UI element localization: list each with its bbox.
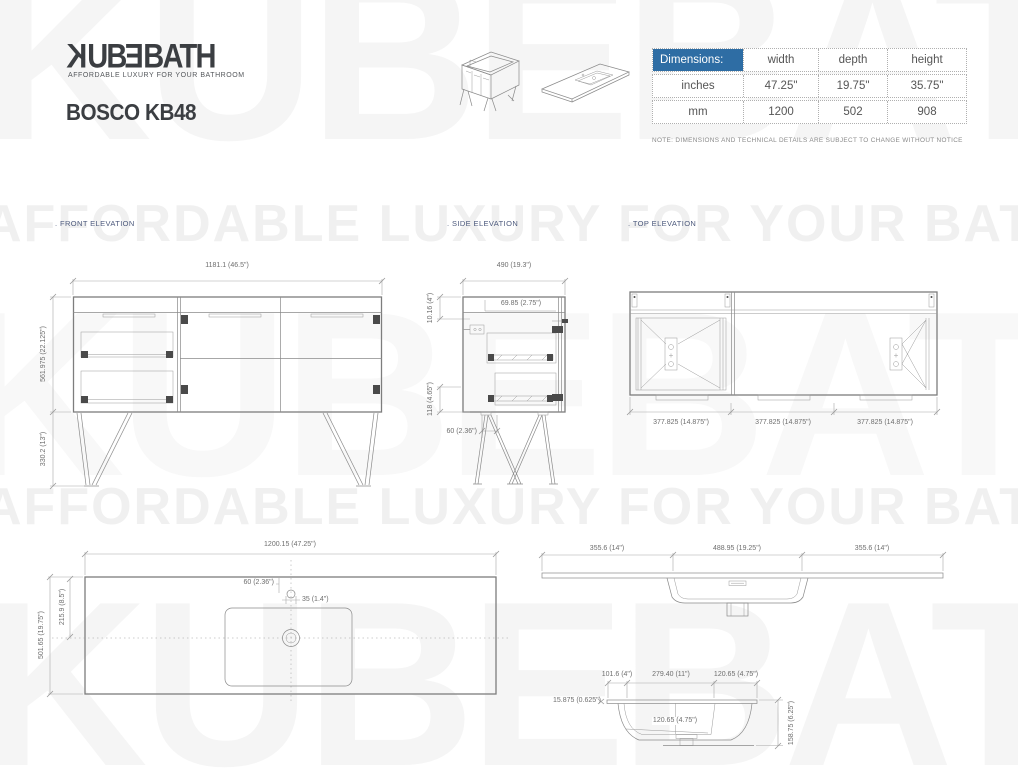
left-bay-brace: [636, 318, 726, 390]
table-header-height: height: [887, 49, 966, 71]
side-depth-dim: 490 (19.3"): [497, 262, 531, 270]
logo-letter-e: E: [126, 36, 144, 76]
sink-iso-icon: [538, 55, 633, 107]
section-label-side-elevation: . SIDE ELEVATION: [447, 219, 518, 228]
table-row-mm: mm 1200 502 908: [652, 100, 967, 124]
sink-front-drawing: 355.6 (14") 488.95 (19.25") 355.6 (14"): [535, 540, 960, 648]
plan-depth-dim: 501.65 (19.75"): [38, 611, 46, 659]
vanity-iso-icon: [450, 45, 525, 113]
side-inner-dim: 69.85 (2.75"): [501, 300, 541, 308]
table-header-dimensions: Dimensions:: [653, 49, 743, 71]
vanity-thumbnail: [450, 45, 525, 113]
sink-front-svg: [535, 540, 960, 648]
hairpin-legs-side: [473, 412, 558, 484]
logo-letter-k: K: [68, 36, 87, 76]
top-elevation-drawing: 377.825 (14.875") 377.825 (14.875") 377.…: [628, 282, 943, 432]
table-header-width: width: [743, 49, 818, 71]
counter-slab: [542, 573, 943, 578]
logo-letters-bath: BATH: [143, 36, 214, 75]
section-d2-dim: 279.40 (11"): [652, 671, 690, 679]
plan-width-dim: 1200.15 (47.25"): [264, 541, 316, 549]
mm-height: 908: [887, 101, 966, 123]
side-lower-dim: 118 (4.65"): [427, 382, 435, 416]
spec-sheet-page: KUBEBATH AFFORDABLE LUXURY FOR YOUR BATH…: [0, 0, 1018, 772]
table-header-row: Dimensions: width depth height: [652, 48, 967, 72]
side-top-rail-dim: 10.16 (4"): [427, 293, 435, 324]
inches-height: 35.75": [887, 75, 966, 97]
sink-thumbnail: [538, 55, 633, 107]
section-basin-depth-dim: 120.65 (4.75"): [652, 717, 698, 725]
countertop-plan-svg: [40, 540, 515, 705]
counter-slab-section: [607, 700, 757, 704]
drawer-1: [81, 332, 173, 357]
front-width-dim: 1181.1 (46.5"): [205, 262, 249, 270]
plan-faucet-offset-dim: 60 (2.36"): [192, 579, 274, 587]
cabinet-divider: [178, 297, 181, 412]
table-row-inches: inches 47.25" 19.75" 35.75": [652, 74, 967, 98]
mm-width: 1200: [743, 101, 818, 123]
hairpin-legs: [77, 413, 378, 486]
brand-tagline: AFFORDABLE LUXURY FOR YOUR BATHROOM: [68, 72, 245, 79]
basin-outline: [225, 608, 352, 686]
section-label-top-elevation: . TOP ELEVATION: [628, 219, 696, 228]
drawer-2: [81, 371, 173, 403]
drain-stub: [727, 603, 748, 616]
top-seg1-dim: 377.825 (14.875"): [653, 419, 709, 427]
front-elevation-drawing: 1181.1 (46.5") 561.975 (22.125") 330.2 (…: [40, 255, 390, 489]
drain-flange: [676, 735, 697, 739]
top-seg3-dim: 377.825 (14.875"): [857, 419, 913, 427]
logo-letters-ub: UB: [87, 36, 125, 75]
product-title: BOSCO KB48: [66, 99, 196, 126]
mm-depth: 502: [818, 101, 887, 123]
section-label-front-elevation: . FRONT ELEVATION: [55, 219, 135, 228]
drain-body: [680, 739, 693, 746]
front-elevation-svg: [40, 255, 390, 489]
sink-section-drawing: 101.6 (4") 279.40 (11") 120.65 (4.75") 1…: [535, 655, 835, 770]
sinkfront-left-dim: 355.6 (14"): [590, 545, 624, 553]
sinkfront-right-dim: 355.6 (14"): [855, 545, 889, 553]
row-label-inches: inches: [653, 75, 743, 97]
inches-width: 47.25": [743, 75, 818, 97]
section-thickness-dim: 15.875 (0.625"): [535, 697, 601, 705]
countertop-plan-drawing: 1200.15 (47.25") 501.65 (19.75") 215.9 (…: [40, 540, 515, 705]
table-header-depth: depth: [818, 49, 887, 71]
section-d1-dim: 101.6 (4"): [602, 671, 633, 679]
section-total-height-dim: 158.75 (6.25"): [788, 701, 796, 745]
inches-depth: 19.75": [818, 75, 887, 97]
top-elevation-svg: [628, 282, 943, 432]
plan-faucet-dia-dim: 35 (1.4"): [302, 596, 329, 604]
section-d3-dim: 120.65 (4.75"): [714, 671, 758, 679]
dimensions-table: Dimensions: width depth height inches 47…: [652, 48, 967, 126]
table-footnote: NOTE: DIMENSIONS AND TECHNICAL DETAILS A…: [652, 137, 982, 144]
side-elevation-drawing: 490 (19.3") 10.16 (4") 69.85 (2.75") 118…: [425, 255, 590, 489]
row-label-mm: mm: [653, 101, 743, 123]
side-leg-offset-dim: 60 (2.36"): [429, 428, 477, 436]
front-leg-height-dim: 330.2 (13"): [40, 432, 48, 466]
front-body-height-dim: 561.975 (22.125"): [40, 326, 48, 382]
right-bay-brace: [890, 318, 929, 390]
brand-logo: KUBEBATH: [68, 36, 215, 76]
sinkfront-center-dim: 488.95 (19.25"): [713, 545, 761, 553]
plan-offset-dim: 215.9 (8.5"): [59, 589, 67, 625]
top-seg2-dim: 377.825 (14.875"): [755, 419, 811, 427]
side-elevation-svg: [425, 255, 590, 489]
